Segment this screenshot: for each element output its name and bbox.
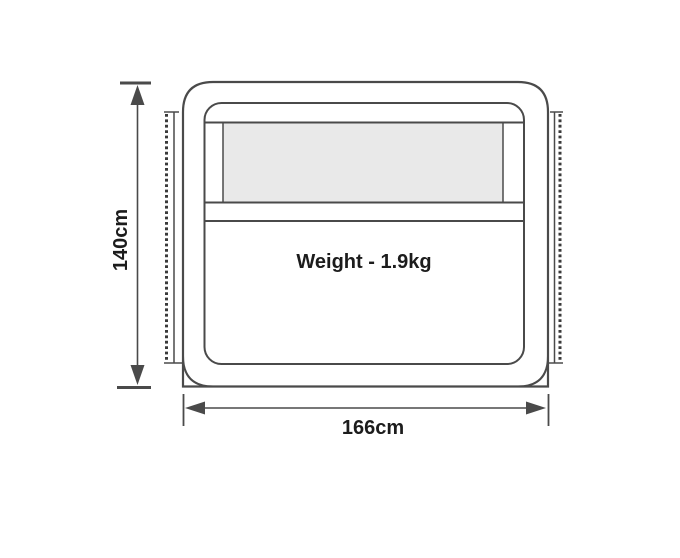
window-panel: [223, 124, 503, 202]
beading-strip-right: [548, 112, 563, 363]
arrow-right-icon: [526, 402, 546, 415]
height-label: 140cm: [110, 209, 132, 271]
arrow-down-icon: [131, 365, 145, 385]
product-dimension-diagram: 140cm 166cm Weight - 1.9kg: [0, 0, 680, 558]
width-label: 166cm: [342, 417, 404, 439]
arrow-left-icon: [185, 402, 205, 415]
dimension-diagram-page: 140cm 166cm Weight - 1.9kg: [0, 0, 680, 558]
beading-strip-left: [164, 112, 183, 363]
weight-label: Weight - 1.9kg: [296, 251, 431, 273]
arrow-up-icon: [131, 85, 145, 105]
